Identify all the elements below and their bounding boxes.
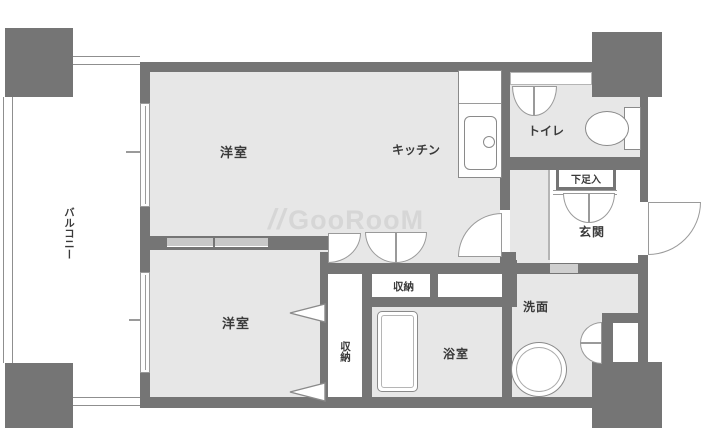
balcony-rail-bottom bbox=[73, 397, 143, 406]
washroom-label: 洗面 bbox=[519, 299, 553, 314]
bathtub bbox=[377, 311, 418, 392]
washbasin-inner bbox=[516, 347, 562, 392]
wall-left-lower bbox=[140, 373, 150, 399]
watermark-text: GooRooM bbox=[288, 205, 424, 235]
toilet-label: トイレ bbox=[522, 122, 570, 138]
kitchen-faucet bbox=[483, 136, 495, 148]
wall-right-upper bbox=[640, 97, 648, 202]
wall-bedroom-right bbox=[320, 252, 328, 397]
watermark: //GooRooM bbox=[268, 206, 424, 235]
pillar-bottom-left bbox=[5, 363, 73, 428]
wall-washroom-closet-left bbox=[602, 313, 613, 363]
pillar-top-right bbox=[592, 32, 662, 97]
hall-closet-label: 収納 bbox=[375, 276, 432, 296]
sliding-door-tick bbox=[213, 238, 215, 247]
toilet-counter-strip bbox=[510, 72, 592, 85]
shoe-cabinet: 下足入 bbox=[556, 167, 616, 190]
bifold-door-upper bbox=[287, 303, 327, 323]
window-bedroom-lower bbox=[140, 272, 150, 373]
wall-bathroom-right bbox=[502, 272, 512, 397]
entrance-step-line bbox=[548, 170, 550, 260]
bedroom-closet-label: 収納 bbox=[337, 330, 354, 372]
floor-plan: //GooRooM 下足入 bbox=[0, 0, 719, 447]
watermark-logo-icon: // bbox=[268, 204, 286, 236]
door-arc-entrance bbox=[648, 202, 701, 255]
toilet-bowl bbox=[585, 111, 629, 146]
wall-bottom bbox=[140, 397, 592, 408]
sliding-door-track bbox=[167, 238, 268, 247]
washbasin bbox=[511, 342, 567, 397]
bifold-door-lower bbox=[287, 382, 327, 402]
washroom-door-slide bbox=[550, 264, 578, 273]
bedroom-upper-label: 洋室 bbox=[206, 142, 262, 160]
entrance-label: 玄関 bbox=[574, 224, 610, 239]
balcony-label: バルコニー bbox=[61, 186, 78, 281]
wall-top bbox=[140, 62, 592, 72]
wall-left-upper bbox=[140, 62, 150, 103]
kitchen-counter-divider bbox=[459, 103, 501, 104]
balcony-rail-top bbox=[73, 56, 140, 65]
corridor-floor bbox=[510, 170, 550, 265]
wall-bathroom-top bbox=[362, 297, 517, 307]
pillar-top-left bbox=[5, 28, 73, 97]
pillar-bottom-right bbox=[592, 362, 662, 428]
utility-space-floor bbox=[437, 275, 507, 297]
shoe-cabinet-label: 下足入 bbox=[571, 171, 601, 186]
window-bedroom-upper bbox=[140, 103, 150, 207]
bedroom-lower-label: 洋室 bbox=[208, 313, 264, 331]
wall-left-middle bbox=[140, 207, 150, 272]
wall-closet-right bbox=[362, 263, 372, 397]
kitchen-label: キッチン bbox=[386, 141, 446, 157]
washroom-closet-floor bbox=[613, 323, 638, 363]
bathroom-label: 浴室 bbox=[437, 346, 475, 361]
balcony-rail-left bbox=[3, 97, 13, 363]
window-tick-lower bbox=[129, 319, 141, 321]
window-tick-upper bbox=[126, 151, 140, 153]
bathtub-inner bbox=[381, 315, 414, 388]
